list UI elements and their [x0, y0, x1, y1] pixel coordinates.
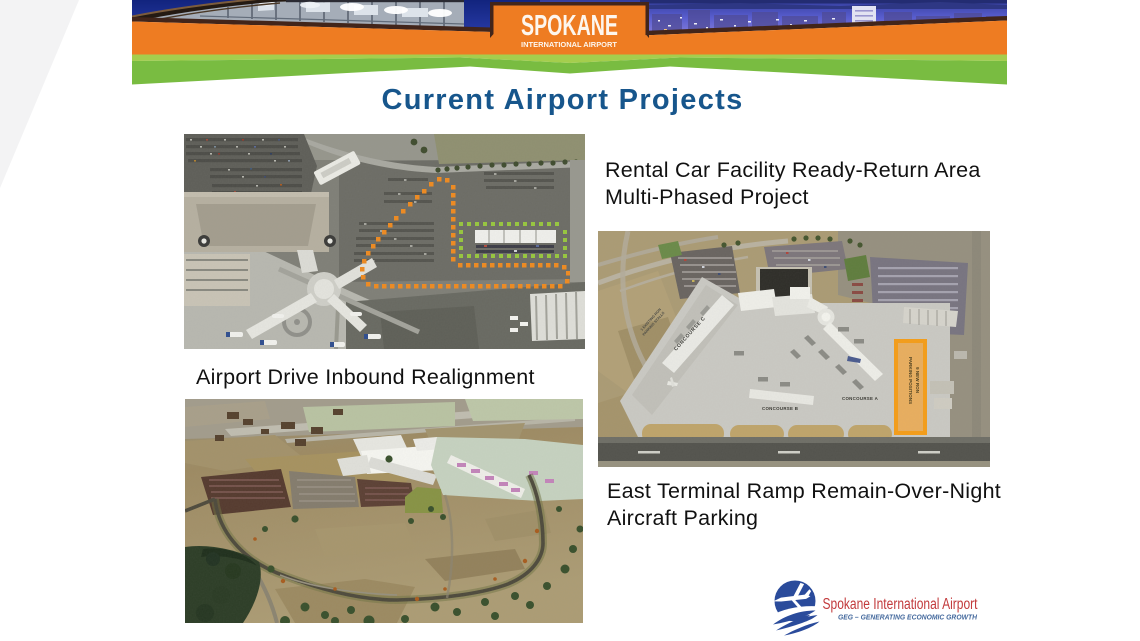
svg-text:Spokane International Airport: Spokane International Airport — [823, 596, 979, 613]
svg-text:INTERNATIONAL AIRPORT: INTERNATIONAL AIRPORT — [521, 42, 618, 49]
svg-text:GEG – GENERATING ECONOMIC GROW: GEG – GENERATING ECONOMIC GROWTH — [838, 613, 978, 622]
svg-text:SPOKANE: SPOKANE — [521, 10, 618, 42]
